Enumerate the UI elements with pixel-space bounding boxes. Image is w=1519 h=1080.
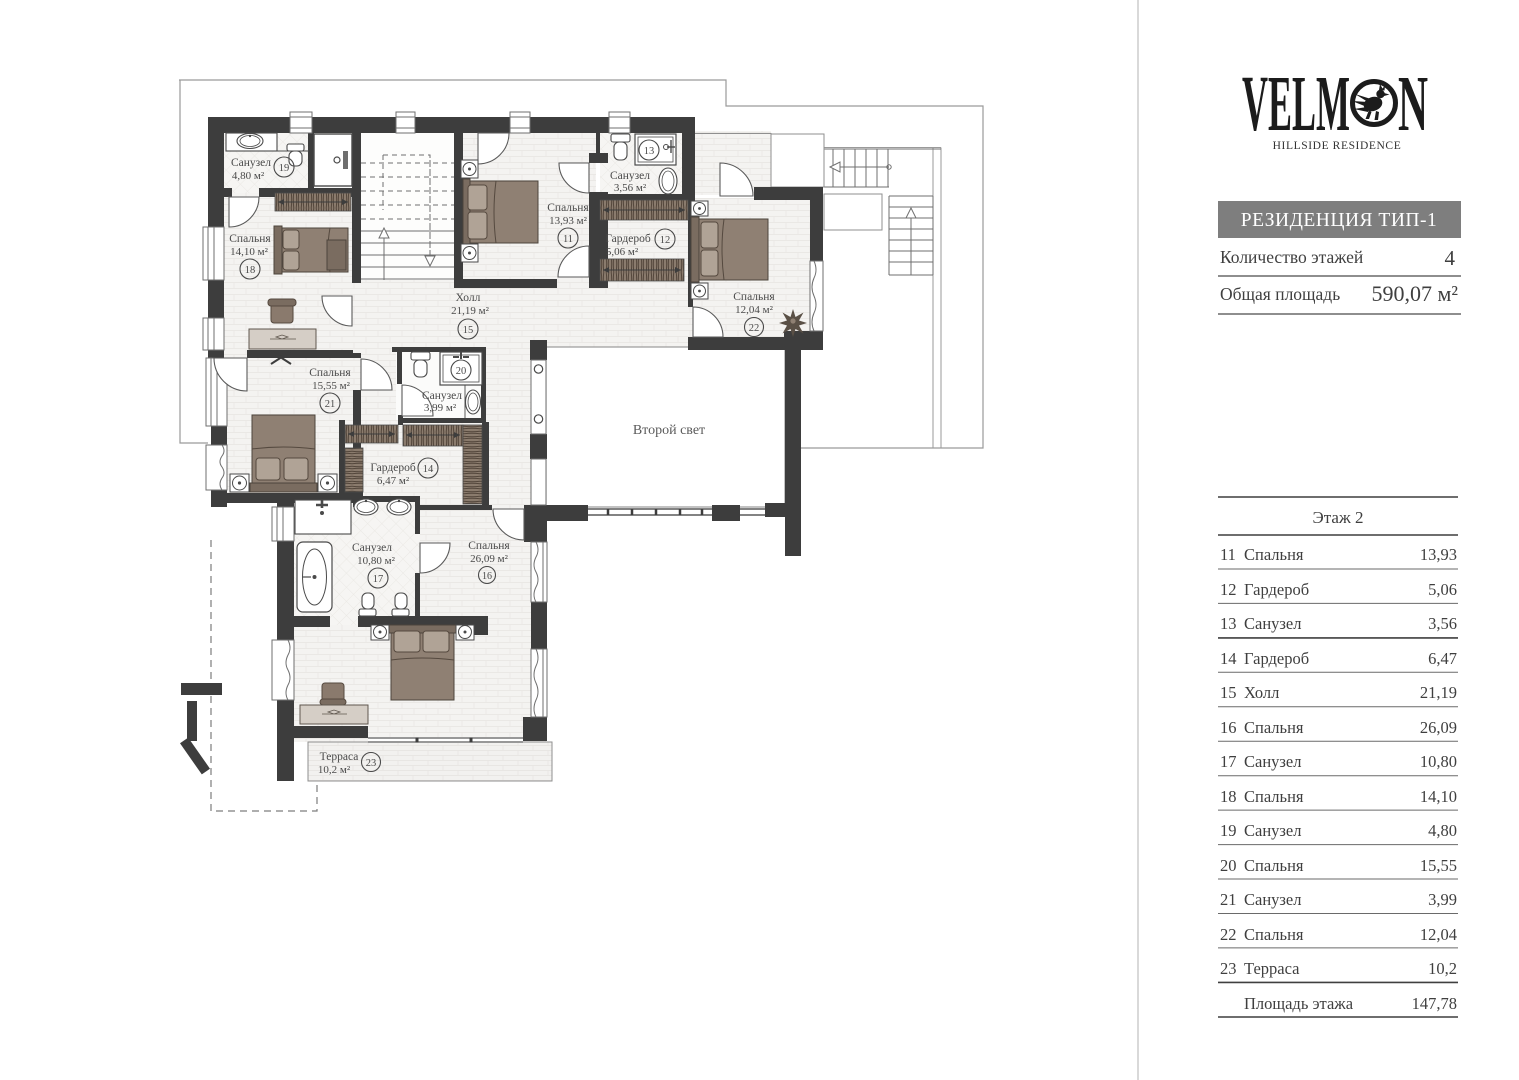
svg-text:15,55: 15,55 bbox=[1420, 856, 1457, 875]
svg-text:147,78: 147,78 bbox=[1412, 994, 1457, 1013]
svg-text:Спальня: Спальня bbox=[1244, 787, 1304, 806]
svg-text:22: 22 bbox=[1220, 925, 1237, 944]
svg-text:Количество этажей: Количество этажей bbox=[1220, 247, 1363, 267]
svg-text:5,06: 5,06 bbox=[1428, 580, 1457, 599]
svg-text:15: 15 bbox=[463, 325, 474, 336]
svg-text:Гардероб: Гардероб bbox=[370, 462, 416, 474]
svg-text:13: 13 bbox=[644, 146, 655, 157]
svg-text:Санузел: Санузел bbox=[231, 157, 271, 169]
svg-text:4: 4 bbox=[1445, 246, 1456, 270]
svg-text:26,09 м²: 26,09 м² bbox=[470, 553, 508, 565]
svg-text:17: 17 bbox=[373, 574, 384, 585]
svg-text:12,04 м²: 12,04 м² bbox=[735, 304, 773, 316]
svg-text:20: 20 bbox=[456, 366, 467, 377]
svg-text:Спальня: Спальня bbox=[1244, 545, 1304, 564]
svg-text:Гардероб: Гардероб bbox=[605, 233, 651, 245]
svg-text:Гардероб: Гардероб bbox=[1244, 580, 1309, 599]
svg-text:Санузел: Санузел bbox=[352, 542, 392, 554]
svg-text:12: 12 bbox=[660, 235, 671, 246]
svg-text:590,07 м²: 590,07 м² bbox=[1371, 281, 1458, 306]
svg-text:16: 16 bbox=[1220, 718, 1237, 737]
svg-text:23: 23 bbox=[1220, 959, 1237, 978]
svg-text:17: 17 bbox=[1220, 752, 1237, 771]
svg-text:6,47 м²: 6,47 м² bbox=[377, 475, 410, 487]
svg-text:Спальня: Спальня bbox=[547, 202, 589, 214]
svg-text:14: 14 bbox=[423, 464, 434, 475]
svg-text:Спальня: Спальня bbox=[468, 540, 510, 552]
svg-text:15: 15 bbox=[1220, 683, 1237, 702]
svg-text:21,19: 21,19 bbox=[1420, 683, 1457, 702]
svg-text:3,99: 3,99 bbox=[1428, 890, 1457, 909]
svg-text:Холл: Холл bbox=[456, 292, 481, 304]
svg-text:VELM: VELM bbox=[1242, 61, 1350, 148]
svg-text:13: 13 bbox=[1220, 614, 1237, 633]
svg-text:10,80 м²: 10,80 м² bbox=[357, 555, 395, 567]
svg-text:11: 11 bbox=[1220, 545, 1236, 564]
svg-text:21: 21 bbox=[1220, 890, 1237, 909]
svg-text:Санузел: Санузел bbox=[422, 390, 462, 402]
svg-text:19: 19 bbox=[279, 163, 290, 174]
svg-text:Спальня: Спальня bbox=[1244, 718, 1304, 737]
svg-text:21: 21 bbox=[325, 399, 336, 410]
svg-text:Санузел: Санузел bbox=[610, 170, 650, 182]
svg-text:15,55 м²: 15,55 м² bbox=[312, 380, 350, 392]
svg-text:14,10 м²: 14,10 м² bbox=[230, 246, 268, 258]
svg-text:23: 23 bbox=[366, 758, 377, 769]
svg-text:Холл: Холл bbox=[1244, 683, 1279, 702]
svg-text:Санузел: Санузел bbox=[1244, 614, 1301, 633]
svg-text:Санузел: Санузел bbox=[1244, 821, 1301, 840]
svg-text:14,10: 14,10 bbox=[1420, 787, 1457, 806]
svg-text:Спальня: Спальня bbox=[1244, 856, 1304, 875]
svg-text:11: 11 bbox=[563, 234, 573, 245]
svg-text:3,56: 3,56 bbox=[1428, 614, 1457, 633]
svg-text:Спальня: Спальня bbox=[733, 291, 775, 303]
svg-text:14: 14 bbox=[1220, 649, 1237, 668]
svg-text:10,2 м²: 10,2 м² bbox=[318, 764, 351, 776]
svg-text:5,06 м²: 5,06 м² bbox=[606, 246, 639, 258]
svg-text:12,04: 12,04 bbox=[1420, 925, 1457, 944]
svg-text:16: 16 bbox=[482, 571, 492, 582]
svg-text:Санузел: Санузел bbox=[1244, 890, 1301, 909]
svg-text:12: 12 bbox=[1220, 580, 1237, 599]
svg-text:19: 19 bbox=[1220, 821, 1237, 840]
svg-text:Спальня: Спальня bbox=[229, 233, 271, 245]
svg-text:Площадь этажа: Площадь этажа bbox=[1244, 994, 1354, 1013]
svg-text:Второй свет: Второй свет bbox=[633, 423, 705, 438]
svg-text:21,19 м²: 21,19 м² bbox=[451, 305, 489, 317]
svg-text:N: N bbox=[1398, 61, 1428, 148]
svg-text:Гардероб: Гардероб bbox=[1244, 649, 1309, 668]
svg-text:13,93: 13,93 bbox=[1420, 545, 1457, 564]
svg-text:4,80 м²: 4,80 м² bbox=[232, 170, 265, 182]
svg-text:3,99 м²: 3,99 м² bbox=[424, 402, 457, 414]
svg-text:HILLSIDE RESIDENCE: HILLSIDE RESIDENCE bbox=[1273, 140, 1402, 152]
svg-text:4,80: 4,80 bbox=[1428, 821, 1457, 840]
svg-text:Общая площадь: Общая площадь bbox=[1220, 284, 1340, 304]
svg-text:10,80: 10,80 bbox=[1420, 752, 1457, 771]
svg-text:3,56 м²: 3,56 м² bbox=[614, 182, 647, 194]
svg-text:Этаж 2: Этаж 2 bbox=[1313, 508, 1364, 527]
svg-text:Санузел: Санузел bbox=[1244, 752, 1301, 771]
svg-text:13,93 м²: 13,93 м² bbox=[549, 215, 587, 227]
svg-text:Спальня: Спальня bbox=[309, 367, 351, 379]
svg-text:6,47: 6,47 bbox=[1428, 649, 1457, 668]
svg-text:20: 20 bbox=[1220, 856, 1237, 875]
svg-text:10,2: 10,2 bbox=[1428, 959, 1457, 978]
svg-text:18: 18 bbox=[245, 265, 256, 276]
svg-text:РЕЗИДЕНЦИЯ ТИП-1: РЕЗИДЕНЦИЯ ТИП-1 bbox=[1241, 210, 1438, 231]
svg-text:26,09: 26,09 bbox=[1420, 718, 1457, 737]
svg-text:18: 18 bbox=[1220, 787, 1237, 806]
svg-text:Спальня: Спальня bbox=[1244, 925, 1304, 944]
svg-text:Терраса: Терраса bbox=[320, 751, 359, 763]
svg-text:Терраса: Терраса bbox=[1244, 959, 1300, 978]
svg-text:22: 22 bbox=[749, 323, 760, 334]
